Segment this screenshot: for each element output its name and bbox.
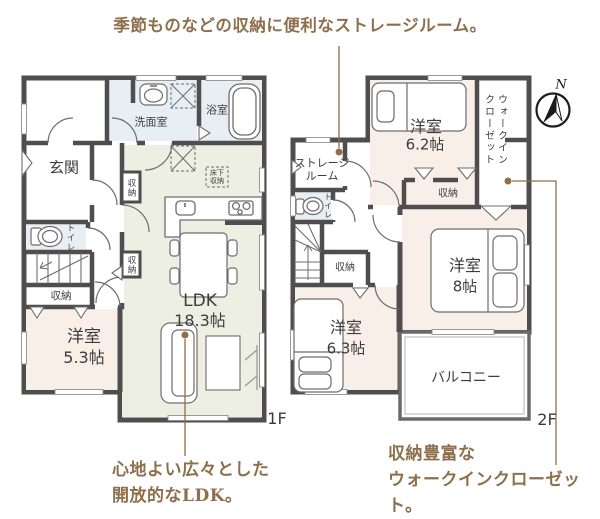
room-label-entrance: 玄関 (49, 159, 79, 176)
room-label-balcony: バルコニー (431, 370, 501, 386)
compass-icon (537, 94, 570, 127)
room-label-toilet-1f: トイレ (64, 224, 76, 253)
closet-label-upper-1f: 収納 (125, 179, 137, 198)
floor-label-1f: 1F (267, 410, 286, 428)
room-label-bathroom: 浴室 (206, 105, 228, 118)
room-size-bedroom8: 8帖 (453, 278, 478, 295)
room-label-bedroom53: 洋室 (67, 328, 101, 348)
leader-dot-storage (336, 149, 343, 156)
room-label-toilet-2f: トイレ (323, 193, 334, 220)
room-label-bedroom8: 洋室 (449, 257, 481, 275)
room-size-bedroom63: 6.3帖 (327, 340, 366, 357)
toilet-icon-1f (31, 227, 62, 247)
caption-wic: 収納豊富な ウォークインクローゼット。 (388, 441, 600, 519)
underfloor-storage-line1: 床下 (210, 169, 224, 177)
dining-table-icon (170, 233, 237, 297)
floor-label-2f: 2F (537, 411, 556, 429)
bathtub-icon (229, 84, 260, 139)
underfloor-storage-line2: 収納 (210, 177, 224, 185)
storage-room-line2: ルーム (295, 170, 350, 183)
caption-ldk-line1: 心地よい広々とした (112, 457, 270, 483)
closet-label-hall-2f: 収納 (335, 262, 355, 274)
wic-label-col2: クローゼット (481, 94, 496, 166)
coffee-table-icon (206, 336, 240, 390)
room-label-ldk: LDK (183, 292, 217, 312)
caption-wic-line2: ウォークインクローゼット。 (388, 467, 600, 519)
room-size-ldk: 18.3帖 (174, 312, 226, 330)
room-size-bedroom62: 6.2帖 (406, 136, 445, 153)
sofa-icon (161, 323, 197, 403)
room-label-bedroom63: 洋室 (330, 319, 362, 337)
sink-icon (140, 84, 167, 105)
caption-ldk: 心地よい広々とした 開放的なLDK。 (112, 457, 270, 509)
storage-room-line1: ストレージ (295, 157, 350, 170)
room-label-storage: ストレージ ルーム (295, 157, 350, 182)
floorplan-page: 季節ものなどの収納に便利なストレージルーム。 玄関 洗面室 浴室 トイレ LDK… (0, 0, 600, 519)
page-title: 季節ものなどの収納に便利なストレージルーム。 (0, 12, 600, 36)
room-label-washroom: 洗面室 (135, 117, 168, 130)
closet-label-lower-1f: 収納 (125, 256, 137, 275)
room-size-bedroom53: 5.3帖 (63, 349, 104, 367)
compass-n-label: N (555, 78, 566, 93)
caption-wic-line1: 収納豊富な (388, 441, 600, 467)
closet-label-62: 収納 (438, 188, 458, 200)
closet-label-stairs-1f: 収納 (51, 290, 72, 302)
toilet-icon-2f (296, 198, 323, 215)
underfloor-storage-label: 床下 収納 (210, 169, 224, 185)
wic-label-col1: ウォークイン (494, 94, 509, 166)
caption-ldk-line2: 開放的なLDK。 (112, 483, 270, 509)
room-label-bedroom62: 洋室 (410, 118, 442, 136)
leader-dot-wic (505, 178, 512, 185)
leader-dot-ldk (182, 332, 189, 339)
